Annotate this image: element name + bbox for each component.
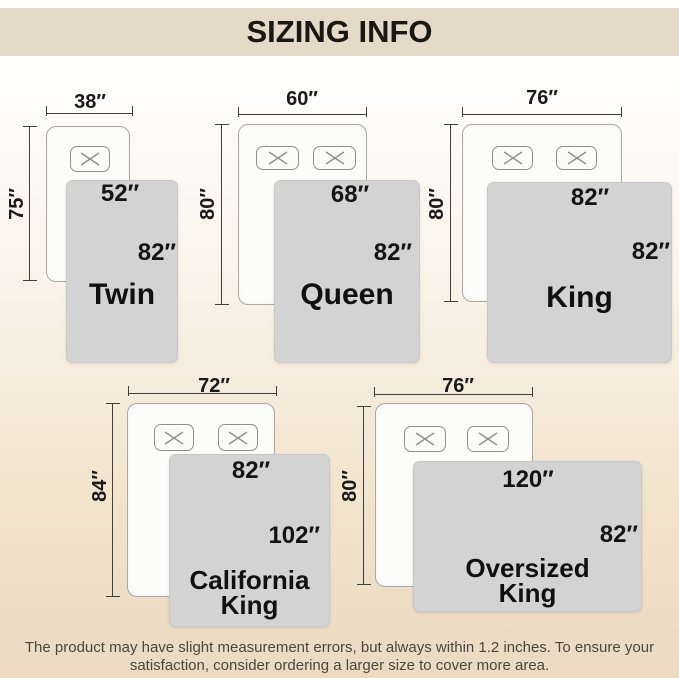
- mattress-width-label: 76″: [512, 88, 572, 108]
- disclaimer-line-2: satisfaction, consider ordering a larger…: [0, 657, 679, 675]
- pillow: [218, 424, 258, 451]
- pillow-x-icon: [228, 431, 248, 445]
- mattress-length-label: 80″: [340, 470, 360, 502]
- title-band: SIZING INFO: [0, 8, 679, 56]
- pillow-x-icon: [80, 152, 100, 166]
- length-dimension-line: [112, 403, 113, 597]
- pillow: [556, 146, 597, 170]
- pillow-x-icon: [478, 432, 498, 446]
- pillow-x-icon: [325, 151, 345, 165]
- width-dimension-line: [238, 114, 367, 115]
- pillow-x-icon: [415, 432, 435, 446]
- size-name-label: Queen: [274, 280, 420, 310]
- size-name-label: Twin: [66, 280, 178, 310]
- pillow: [313, 146, 356, 170]
- mattress-length-label: 75″: [7, 188, 27, 220]
- blanket-length-label: 82″: [368, 241, 412, 265]
- mattress-width-label: 60″: [272, 89, 332, 109]
- blanket-width-label: 82″: [221, 459, 281, 483]
- blanket-length-label: 82″: [626, 240, 670, 264]
- length-dimension-line: [29, 126, 30, 281]
- width-dimension-line: [128, 393, 277, 394]
- sizing-info-infographic: SIZING INFO 38″ 75″ 52″ 82″ Twin 60″ 80″: [0, 0, 679, 678]
- blanket-width-label: 120″: [493, 468, 563, 492]
- length-dimension-line: [450, 124, 451, 302]
- mattress-length-label: 80″: [427, 188, 447, 220]
- width-dimension-line: [374, 394, 533, 395]
- blanket-length-label: 82″: [594, 523, 638, 547]
- mattress-width-label: 76″: [428, 376, 488, 396]
- length-dimension-line: [363, 406, 364, 585]
- blanket-length-label: 102″: [258, 524, 320, 548]
- pillow-x-icon: [567, 151, 587, 165]
- width-dimension-line: [462, 114, 622, 115]
- disclaimer-line-1: The product may have slight measurement …: [0, 639, 679, 657]
- mattress-width-label: 38″: [60, 92, 120, 112]
- size-name-line: Queen: [274, 280, 420, 310]
- page-title: SIZING INFO: [247, 14, 433, 50]
- pillow-x-icon: [164, 431, 184, 445]
- size-name-label: California King: [169, 568, 330, 618]
- size-name-line: Twin: [66, 280, 178, 310]
- pillow-x-icon: [268, 151, 288, 165]
- blanket-width-label: 52″: [90, 182, 150, 206]
- mattress-length-label: 80″: [198, 188, 218, 220]
- pillow: [467, 426, 509, 452]
- pillow: [154, 424, 194, 451]
- measurement-disclaimer: The product may have slight measurement …: [0, 639, 679, 674]
- blanket-overlay: [66, 180, 178, 363]
- size-name-line: King: [487, 283, 672, 313]
- mattress-length-label: 84″: [90, 470, 110, 502]
- pillow: [256, 146, 299, 170]
- blanket-length-label: 82″: [128, 241, 176, 265]
- blanket-width-label: 68″: [320, 183, 380, 207]
- size-name-label: Oversized King: [413, 556, 642, 606]
- length-dimension-line: [221, 124, 222, 305]
- pillow: [492, 146, 533, 170]
- width-dimension-line: [46, 113, 133, 114]
- size-name-label: King: [487, 283, 672, 313]
- pillow-x-icon: [503, 151, 523, 165]
- blanket-width-label: 82″: [560, 186, 620, 210]
- pillow: [70, 146, 110, 172]
- size-name-line: King: [413, 581, 642, 606]
- pillow: [404, 426, 446, 452]
- size-name-line: King: [169, 593, 330, 618]
